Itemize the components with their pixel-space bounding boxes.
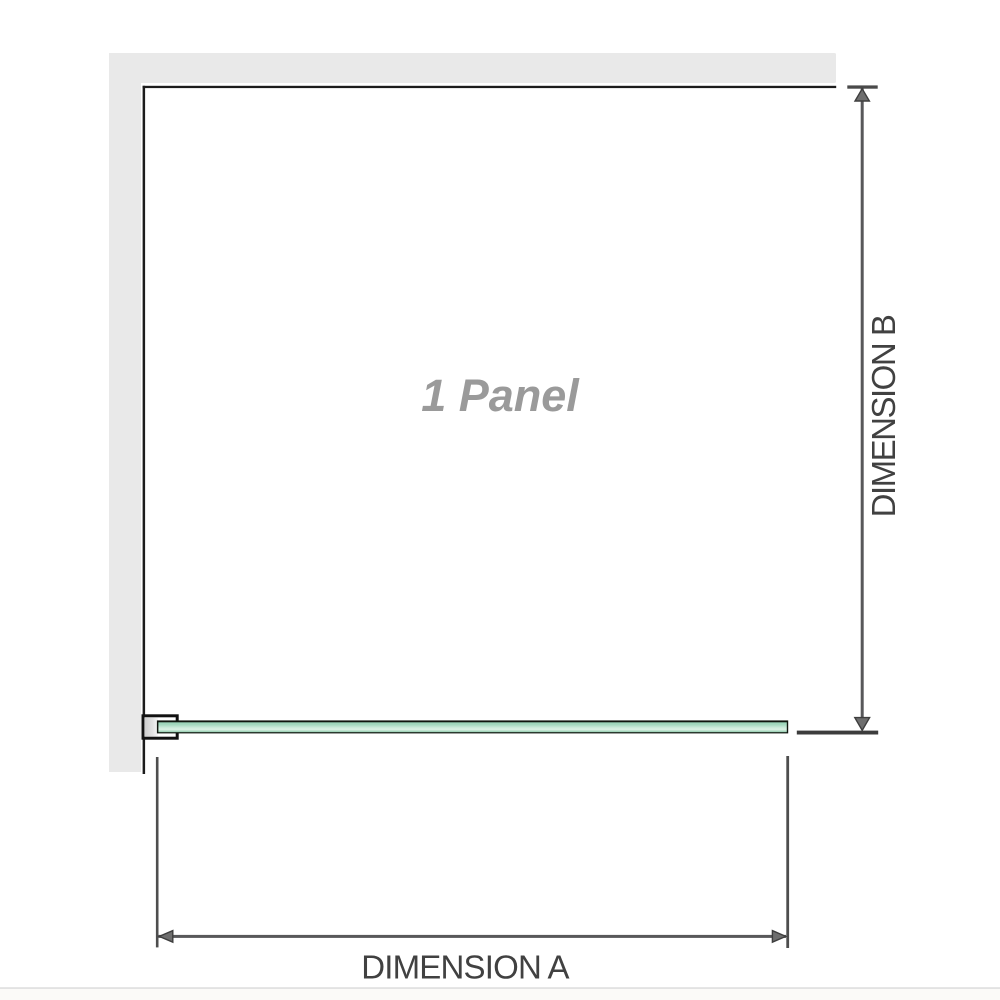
svg-text:DIMENSION A: DIMENSION A xyxy=(361,948,569,985)
svg-text:DIMENSION B: DIMENSION B xyxy=(865,315,902,517)
svg-text:1 Panel: 1 Panel xyxy=(421,370,580,421)
